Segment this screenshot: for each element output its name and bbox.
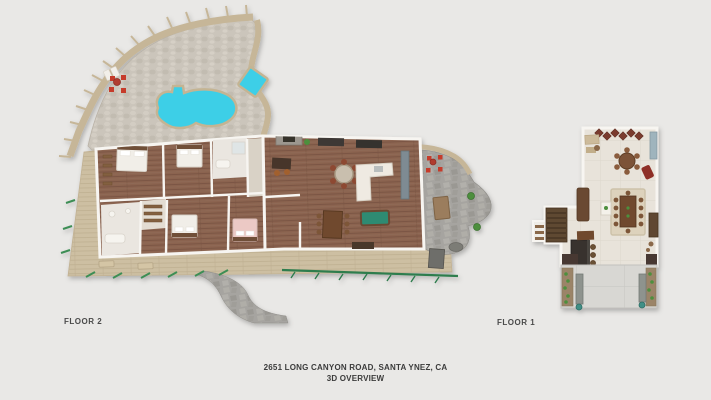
bed-3 xyxy=(172,215,197,237)
floor1-patio xyxy=(561,265,657,310)
deck-bench xyxy=(138,263,153,270)
boulder xyxy=(449,243,463,252)
wall-cabinets xyxy=(401,151,409,199)
bed-4 xyxy=(233,219,257,241)
wall-stub xyxy=(562,254,578,265)
wing-shelves xyxy=(535,225,544,240)
footer: 2651 LONG CANYON ROAD, SANTA YNEZ, CA 3D… xyxy=(0,362,711,384)
kitchen-counter xyxy=(356,140,382,148)
floor1-plan xyxy=(533,128,658,310)
foyer xyxy=(247,138,263,197)
gate-structure xyxy=(428,249,444,269)
staircase xyxy=(546,208,567,242)
fireplace-insert xyxy=(283,136,295,142)
overview-line: 3D OVERVIEW xyxy=(0,373,711,384)
wood-patio-table xyxy=(433,196,450,219)
floor2-house xyxy=(96,132,424,257)
house-plant xyxy=(304,139,310,145)
swimming-pool xyxy=(157,86,237,128)
patio-bench xyxy=(576,274,583,304)
bed-2 xyxy=(177,145,202,167)
stone-path xyxy=(198,271,288,323)
floor-plan-overview-page: FLOOR 2 FLOOR 1 2651 LONG CANYON ROAD, S… xyxy=(0,0,711,400)
media-cabinet xyxy=(318,138,344,146)
side-table xyxy=(577,231,594,241)
floor2-plan xyxy=(59,5,491,323)
bathroom xyxy=(101,202,140,256)
blue-counter xyxy=(650,132,657,159)
island-sink xyxy=(374,166,383,172)
sideboard xyxy=(352,242,374,249)
teal-pot xyxy=(576,304,582,310)
teal-pot xyxy=(639,302,645,308)
bed-master xyxy=(117,145,148,171)
desk-area xyxy=(585,135,600,153)
floor1-label: FLOOR 1 xyxy=(497,318,535,327)
pool-table xyxy=(361,211,389,226)
floor2-label: FLOOR 2 xyxy=(64,317,102,326)
floor-plans-rendering xyxy=(0,0,711,400)
wine-cabinet xyxy=(649,213,658,237)
decor-picture xyxy=(601,202,611,215)
deck-bench xyxy=(99,261,114,268)
address-line: 2651 LONG CANYON ROAD, SANTA YNEZ, CA xyxy=(0,362,711,373)
patio-bench xyxy=(639,274,646,302)
sofa xyxy=(577,188,589,221)
wall-stub xyxy=(646,254,657,265)
